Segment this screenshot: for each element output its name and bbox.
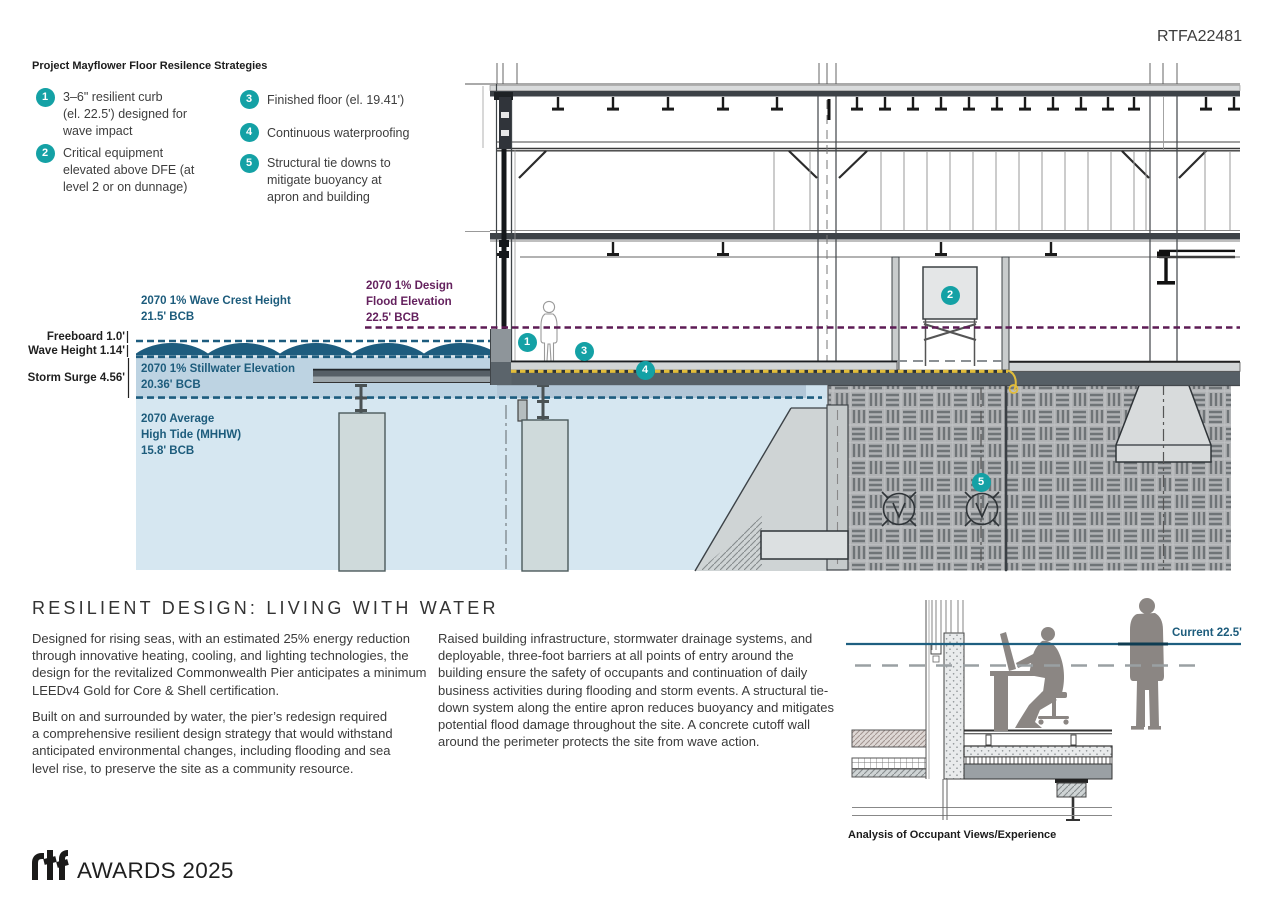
svg-text:AWARDS 2025: AWARDS 2025 xyxy=(77,858,234,883)
